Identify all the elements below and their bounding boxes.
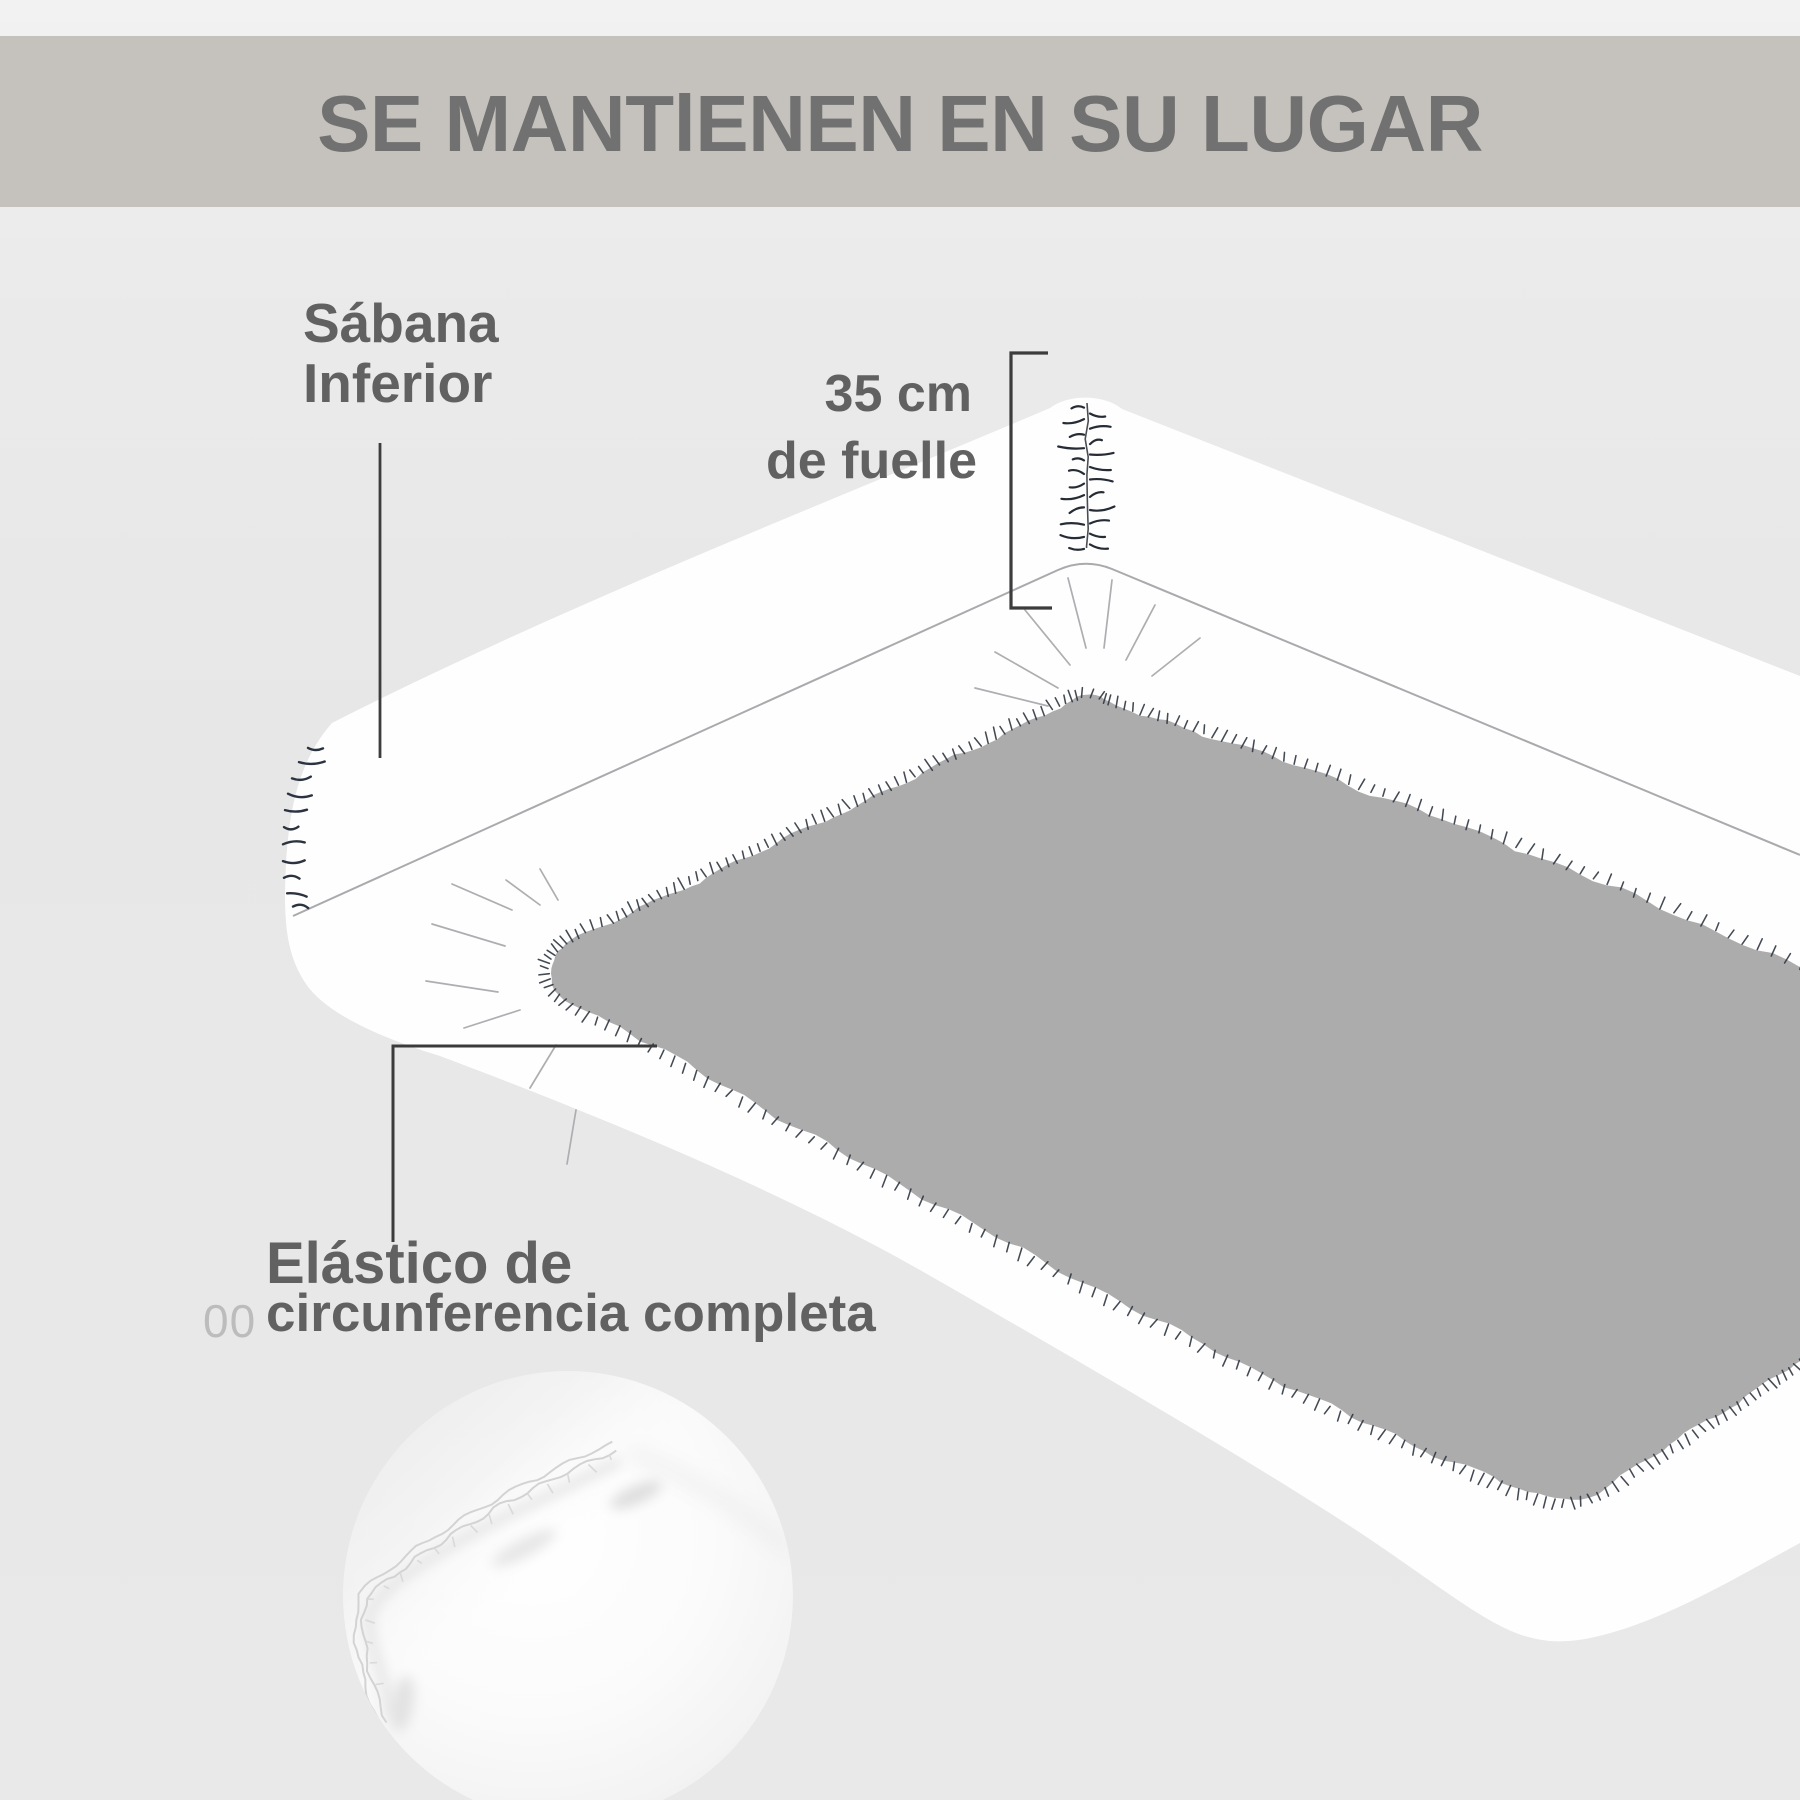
svg-text:de fuelle: de fuelle xyxy=(766,432,977,490)
svg-text:00: 00 xyxy=(203,1295,256,1347)
svg-text:Sábana: Sábana xyxy=(303,292,499,354)
svg-text:35 cm: 35 cm xyxy=(825,365,972,423)
svg-text:SE MANTlENEN EN SU LUGAR: SE MANTlENEN EN SU LUGAR xyxy=(317,79,1483,168)
svg-text:circunferencia completa: circunferencia completa xyxy=(266,1284,876,1343)
svg-text:Inferior: Inferior xyxy=(303,352,492,414)
